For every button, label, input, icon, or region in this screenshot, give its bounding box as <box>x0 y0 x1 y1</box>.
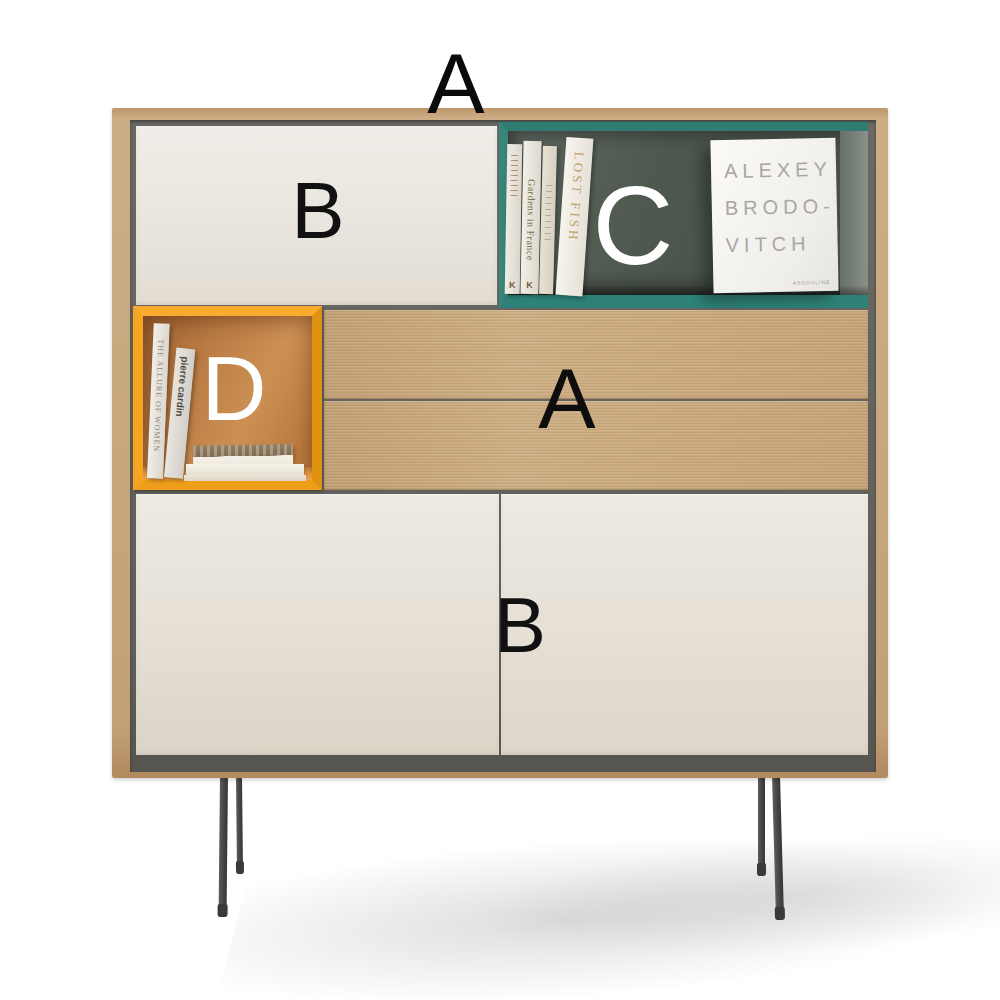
lower-door-left-panel <box>136 494 499 755</box>
book-cover-title-line: BRODO- <box>724 188 837 227</box>
label-d-open-box: D <box>189 344 279 434</box>
book-spine-title: THE ALLURE OF WOMEN <box>152 323 167 452</box>
stacked-book-middle <box>186 464 304 475</box>
book-cover-title-line: VITCH <box>725 225 838 264</box>
stacked-book-top <box>193 444 293 466</box>
book-spine-small: K <box>505 144 523 294</box>
book-alexey-brodovitch: ALEXEY BRODO- VITCH ASSOULINE <box>710 138 838 294</box>
floor-shadow <box>207 818 1000 1000</box>
cabinet-leg-front-left <box>219 777 228 917</box>
book-spine-title: LOST FISH <box>565 137 588 243</box>
label-b-upper-door: B <box>273 171 363 251</box>
label-c-open-shelf: C <box>588 170 678 282</box>
book-spine-gardens-in-france: Gardens in France K <box>520 141 541 294</box>
shelf-side-panel <box>840 131 868 295</box>
publisher-k-logo: K <box>520 280 538 290</box>
product-image: K Gardens in France K LOST FISH ALEXEY B… <box>0 0 1000 1000</box>
book-spine-title: Gardens in France <box>525 141 539 261</box>
stacked-book-bottom <box>184 475 306 481</box>
publisher-k-logo: K <box>505 280 520 290</box>
cabinet-leg-back-right <box>758 775 765 876</box>
label-a-top-panel: A <box>411 40 501 126</box>
label-a-drawers: A <box>522 355 612 441</box>
book-publisher-text: ASSOULINE <box>793 279 831 286</box>
label-b-lower-doors: B <box>475 586 565 664</box>
cabinet-leg-back-left <box>236 777 243 874</box>
book-cover-title-line: ALEXEY <box>724 151 837 190</box>
